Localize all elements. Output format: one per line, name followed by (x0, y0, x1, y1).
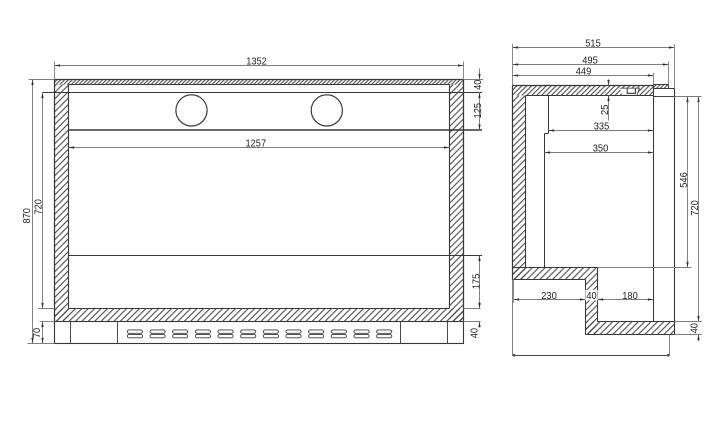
svg-text:1352: 1352 (246, 55, 267, 67)
svg-text:350: 350 (593, 142, 609, 154)
svg-text:25: 25 (599, 105, 611, 115)
svg-text:40: 40 (586, 290, 596, 302)
svg-text:1257: 1257 (246, 137, 267, 149)
svg-text:720: 720 (32, 199, 44, 215)
svg-text:180: 180 (622, 290, 638, 302)
svg-text:125: 125 (472, 103, 484, 119)
svg-text:720: 720 (689, 200, 701, 216)
svg-text:515: 515 (585, 37, 601, 49)
svg-text:230: 230 (541, 290, 557, 302)
svg-text:40: 40 (688, 323, 700, 333)
svg-text:40: 40 (472, 79, 484, 89)
svg-text:546: 546 (678, 172, 690, 188)
svg-text:335: 335 (594, 120, 610, 132)
svg-text:40: 40 (469, 328, 481, 338)
svg-text:449: 449 (576, 65, 592, 77)
svg-text:70: 70 (31, 328, 43, 338)
svg-text:175: 175 (471, 274, 483, 290)
